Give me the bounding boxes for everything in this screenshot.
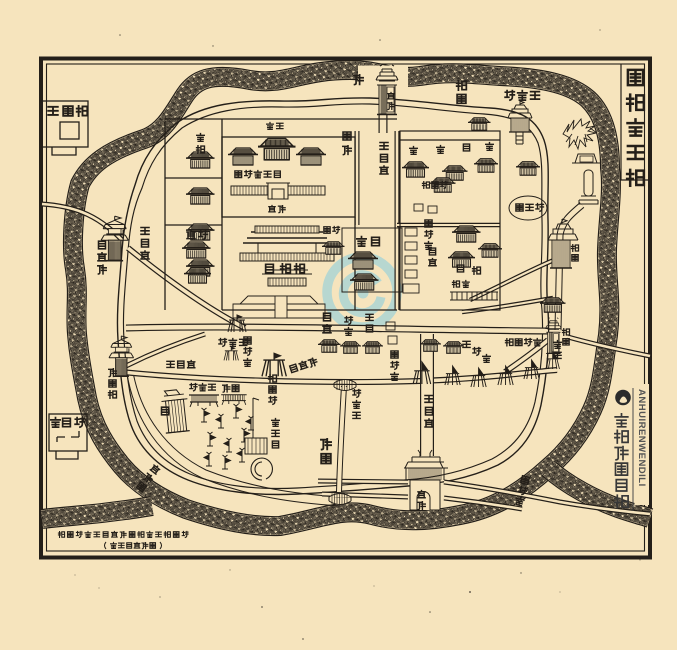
svg-text:ANHUIRENWENDILI: ANHUIRENWENDILI — [636, 389, 647, 487]
